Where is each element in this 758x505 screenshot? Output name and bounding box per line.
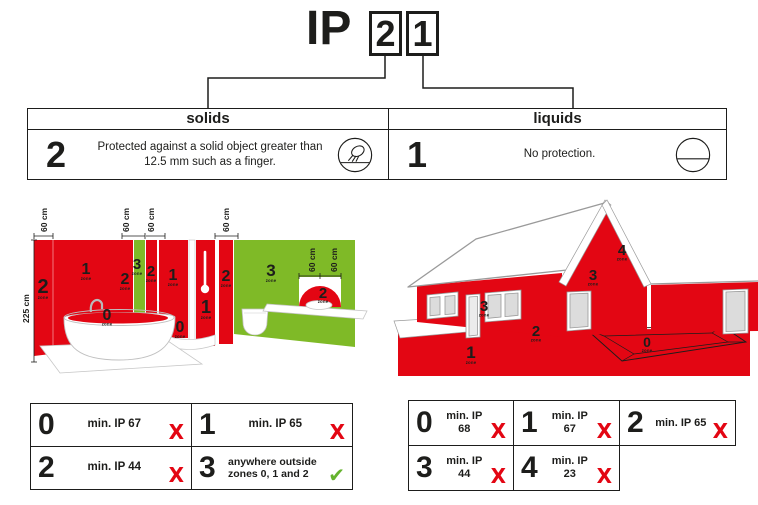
- not-allowed-mark: X: [713, 421, 728, 445]
- solids-column: solids 2 Protected against a solid objec…: [28, 109, 389, 179]
- allowed-mark: ✔: [328, 465, 345, 489]
- rule-zone-digit: 0: [416, 408, 438, 438]
- solids-rating-digit: 2: [28, 137, 84, 173]
- zone-word: zone: [617, 257, 628, 262]
- rule-cell: 2 min. IP 44 X: [31, 447, 192, 490]
- zone-word: zone: [81, 276, 92, 281]
- empty-cell: [620, 446, 736, 491]
- rule-text: min. IP 44: [63, 461, 166, 474]
- rule-cell: 0 min. IP 68 X: [409, 401, 514, 446]
- solids-row: 2 Protected against a solid object great…: [28, 130, 388, 179]
- rule-text: min. IP 67: [63, 418, 166, 431]
- rule-zone-digit: 1: [199, 410, 221, 440]
- zone-word: zone: [102, 322, 113, 327]
- rule-text: min. IP 67: [546, 410, 594, 435]
- toilet: [242, 309, 268, 335]
- rule-zone-digit: 1: [521, 408, 543, 438]
- not-allowed-mark: X: [169, 465, 184, 489]
- not-allowed-mark: X: [330, 422, 345, 446]
- zone-word: zone: [168, 282, 179, 287]
- zone-word: zone: [479, 313, 490, 318]
- solids-digit: 2: [375, 13, 395, 55]
- dim-label-60cm-6: 60 cm: [329, 247, 339, 272]
- solids-digit-box: 2: [369, 11, 402, 56]
- zone-word: zone: [201, 315, 212, 320]
- dim-label-60cm-1: 60 cm: [39, 207, 49, 232]
- bathtub-water-zone0: [68, 313, 168, 324]
- rule-cell: 2 min. IP 65 X: [620, 401, 736, 446]
- liquids-description: No protection.: [445, 147, 674, 162]
- rule-cell: 4 min. IP 23 X: [514, 446, 620, 491]
- liquids-digit-box: 1: [406, 11, 439, 56]
- zone-word: zone: [588, 282, 599, 287]
- title-prefix: IP: [306, 5, 351, 53]
- solids-description: Protected against a solid object greater…: [84, 140, 336, 170]
- bathroom-zone-label: 1: [201, 297, 211, 317]
- rule-text: min. IP 65: [224, 418, 327, 431]
- zone-word: zone: [146, 278, 157, 283]
- rule-zone-digit: 4: [521, 453, 543, 483]
- rule-cell: 1 min. IP 65 X: [192, 404, 353, 447]
- zone-word: zone: [266, 278, 277, 283]
- dim-label-60cm-3: 60 cm: [146, 207, 156, 232]
- liquids-column: liquids 1 No protection.: [389, 109, 726, 179]
- no-protection-icon: [674, 136, 712, 174]
- rule-text: min. IP 23: [546, 455, 594, 480]
- zone-word: zone: [120, 286, 131, 291]
- rule-zone-digit: 2: [38, 453, 60, 483]
- not-allowed-mark: X: [169, 422, 184, 446]
- solids-header: solids: [28, 109, 388, 130]
- zone-word: zone: [221, 283, 232, 288]
- zone-word: zone: [642, 348, 653, 353]
- rule-text: anywhere outside zones 0, 1 and 2: [224, 456, 325, 480]
- zone-word: zone: [466, 360, 477, 365]
- not-allowed-mark: X: [491, 466, 506, 490]
- rule-cell: 3 anywhere outside zones 0, 1 and 2 ✔: [192, 447, 353, 490]
- rating-table: solids 2 Protected against a solid objec…: [27, 108, 727, 180]
- window: [485, 290, 521, 322]
- dim-label-60cm-2: 60 cm: [121, 207, 131, 232]
- zone-word: zone: [38, 295, 49, 300]
- liquids-rating-digit: 1: [389, 137, 445, 173]
- house-zone-rules-table: 0 min. IP 68 X 1 min. IP 67 X 2 min. IP …: [408, 400, 736, 491]
- ip-rating-infographic: IP 2 1 solids 2 Protected against a soli…: [0, 0, 758, 505]
- zone-word: zone: [531, 338, 542, 343]
- not-allowed-mark: X: [597, 466, 612, 490]
- liquids-header: liquids: [389, 109, 726, 130]
- page-title: IP 2 1: [306, 8, 456, 60]
- window: [427, 292, 458, 319]
- liquids-row: 1 No protection.: [389, 130, 726, 179]
- rule-text: min. IP 44: [441, 455, 488, 480]
- window: [723, 289, 748, 334]
- liquids-digit: 1: [412, 13, 432, 55]
- rule-cell: 3 min. IP 44 X: [409, 446, 514, 491]
- rule-text: min. IP 65: [652, 417, 710, 430]
- zone-word: zone: [132, 271, 143, 276]
- rule-zone-digit: 0: [38, 410, 60, 440]
- zone-word: zone: [175, 334, 186, 339]
- dim-label-60cm-5: 60 cm: [307, 247, 317, 272]
- bathroom-zones-diagram: 60 cm 60 cm 60 cm 60 cm 60 cm 60 cm 225 …: [18, 192, 390, 398]
- not-allowed-mark: X: [491, 421, 506, 445]
- house-zones-diagram: 4zone 3zone 3zone 2zone 1zone 0zone: [390, 190, 758, 390]
- finger-protection-icon: [336, 136, 374, 174]
- rule-zone-digit: 3: [199, 453, 221, 483]
- bathroom-zone-rules-table: 0 min. IP 67 X 1 min. IP 65 X 2 min. IP …: [30, 403, 353, 490]
- rule-cell: 1 min. IP 67 X: [514, 401, 620, 446]
- height-label-225cm: 225 cm: [21, 294, 31, 323]
- window: [567, 291, 591, 331]
- rule-zone-digit: 2: [627, 408, 649, 438]
- zone-word: zone: [318, 299, 329, 304]
- rule-zone-digit: 3: [416, 453, 438, 483]
- dim-label-60cm-4: 60 cm: [221, 207, 231, 232]
- not-allowed-mark: X: [597, 421, 612, 445]
- rule-cell: 0 min. IP 67 X: [31, 404, 192, 447]
- rule-text: min. IP 68: [441, 410, 488, 435]
